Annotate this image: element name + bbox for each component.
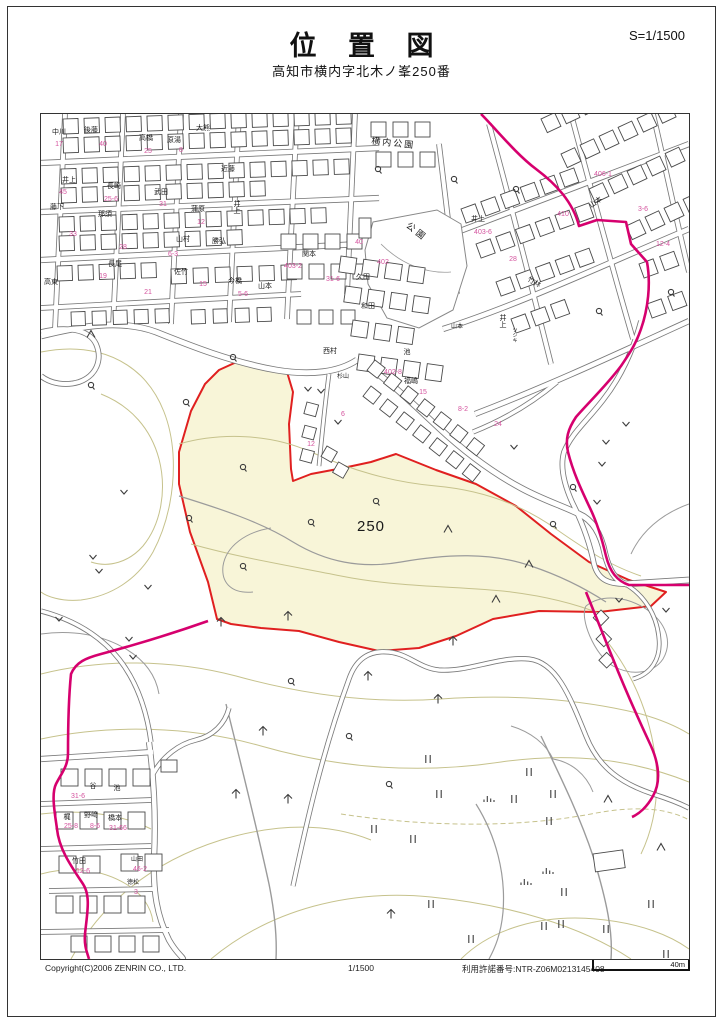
map-label: 関本 bbox=[302, 249, 316, 258]
map-label: 25 bbox=[144, 148, 152, 155]
map-sheet: 位 置 図 高知市横内字北木ノ峯250番 S=1/1500 中川後藤高橋原湯大熊… bbox=[0, 0, 723, 1024]
map-label: 今橋 bbox=[228, 276, 242, 285]
map-label: 後藤 bbox=[84, 125, 98, 134]
map-label: 徳松 bbox=[127, 878, 139, 886]
map-label: 谷 bbox=[90, 781, 97, 790]
map-label: 高橋 bbox=[139, 133, 153, 142]
map-label: 近藤 bbox=[221, 164, 235, 173]
map-label: 井上 bbox=[234, 199, 241, 215]
map-label: 6 bbox=[341, 411, 345, 418]
parcel-number-label: 250 bbox=[357, 518, 385, 535]
map-label: 31 bbox=[159, 201, 167, 208]
map-label: ツシキ bbox=[512, 328, 517, 344]
map-label: 蒲原 bbox=[191, 204, 205, 213]
map-label: 梶 bbox=[64, 812, 71, 821]
map-label: 和田 bbox=[361, 301, 375, 310]
scale-bar-label: 40m bbox=[670, 960, 685, 969]
map-label: 池 bbox=[114, 783, 121, 792]
map-label: 28 bbox=[509, 256, 517, 263]
map-label: 402 bbox=[377, 259, 389, 266]
footer-scale-text: 1/1500 bbox=[348, 963, 374, 973]
map-label: 長崎 bbox=[107, 181, 121, 190]
map-label: 33 bbox=[69, 231, 77, 238]
map-label: 山本 bbox=[258, 281, 272, 290]
map-label: 6-3 bbox=[168, 251, 178, 258]
map-label: 中川 bbox=[52, 127, 66, 136]
map-label: 原湯 bbox=[167, 135, 181, 144]
page-subtitle: 高知市横内字北木ノ峯250番 bbox=[0, 61, 723, 80]
map-label: 31-66 bbox=[109, 825, 127, 832]
map-label: 15 bbox=[419, 389, 427, 396]
map-label: 15 bbox=[199, 281, 207, 288]
map-label: 40 bbox=[355, 239, 363, 246]
copyright-text: Copyright(C)2006 ZENRIN CO., LTD. bbox=[45, 963, 186, 973]
map-label: 17 bbox=[55, 141, 63, 148]
map-label: 大熊 bbox=[196, 123, 210, 132]
map-label: 410 bbox=[557, 211, 569, 218]
map-svg: 中川後藤高橋原湯大熊近藤井上長崎武田藤下那須蒲原井上山村勝弘長尾高東佐竹今橋山本… bbox=[41, 114, 689, 959]
map-label: 28 bbox=[119, 244, 127, 251]
map-label: 12 bbox=[307, 441, 315, 448]
map-label: 31-6 bbox=[326, 276, 340, 283]
map-label: 8-6 bbox=[90, 823, 100, 830]
map-label: 402-8 bbox=[384, 369, 402, 376]
license-number-text: 利用許諾番号:NTR-Z06M0213145408 bbox=[462, 963, 605, 975]
map-label: 井上 bbox=[62, 175, 76, 184]
page-title: 位 置 図 bbox=[0, 24, 723, 63]
map-label: 31-6 bbox=[71, 793, 85, 800]
map-label: 12 bbox=[197, 219, 205, 226]
map-label: 武田 bbox=[154, 187, 168, 196]
map-label: 46-2 bbox=[133, 866, 147, 873]
map-label: 403-6 bbox=[474, 229, 492, 236]
map-label: 19 bbox=[99, 273, 107, 280]
map-label: 12-4 bbox=[656, 241, 670, 248]
scale-note: S=1/1500 bbox=[629, 28, 685, 43]
map-label: 西村 bbox=[323, 346, 337, 355]
map-label: 長尾 bbox=[108, 260, 122, 268]
map-label: 山村 bbox=[176, 234, 190, 243]
map-label: 3-6 bbox=[638, 206, 648, 213]
map-label: 高東 bbox=[44, 277, 58, 286]
map-label: 竹田 bbox=[72, 856, 86, 865]
map-label: 12-6 bbox=[76, 868, 90, 875]
map-label: 佐竹 bbox=[174, 267, 188, 276]
map-label: 45 bbox=[59, 189, 67, 196]
map-label: 久田 bbox=[356, 272, 370, 281]
map-label: 21 bbox=[144, 289, 152, 296]
map-label: 山田 bbox=[131, 855, 143, 863]
map-label: 406-1 bbox=[594, 171, 612, 178]
map-label: 403-2 bbox=[284, 263, 302, 270]
scale-bar: 40m bbox=[592, 960, 690, 971]
map-label: 橋本 bbox=[108, 813, 122, 822]
map-label: 野﨑 bbox=[84, 810, 98, 819]
map-label: 杉山 bbox=[337, 372, 349, 380]
map-label: 藤下 bbox=[50, 202, 64, 211]
map-label: 那須 bbox=[98, 209, 112, 218]
map-label: 25-6 bbox=[104, 196, 118, 203]
map-label: 勝弘 bbox=[212, 236, 226, 245]
map-label: 池 bbox=[404, 347, 411, 356]
map-label: 40 bbox=[99, 141, 107, 148]
map-canvas: 中川後藤高橋原湯大熊近藤井上長崎武田藤下那須蒲原井上山村勝弘長尾高東佐竹今橋山本… bbox=[40, 113, 690, 960]
map-label: 3 bbox=[134, 889, 138, 896]
map-label: 井上 bbox=[471, 214, 485, 223]
map-label: 山本 bbox=[451, 322, 463, 330]
map-label: 24 bbox=[494, 421, 502, 428]
map-label: 25-8 bbox=[64, 823, 78, 830]
map-label: 8 bbox=[179, 147, 183, 154]
map-label: 福嶋 bbox=[404, 376, 418, 385]
map-label: 8-2 bbox=[458, 406, 468, 413]
map-label: 井上 bbox=[500, 313, 507, 329]
map-label: 5-6 bbox=[238, 291, 248, 298]
